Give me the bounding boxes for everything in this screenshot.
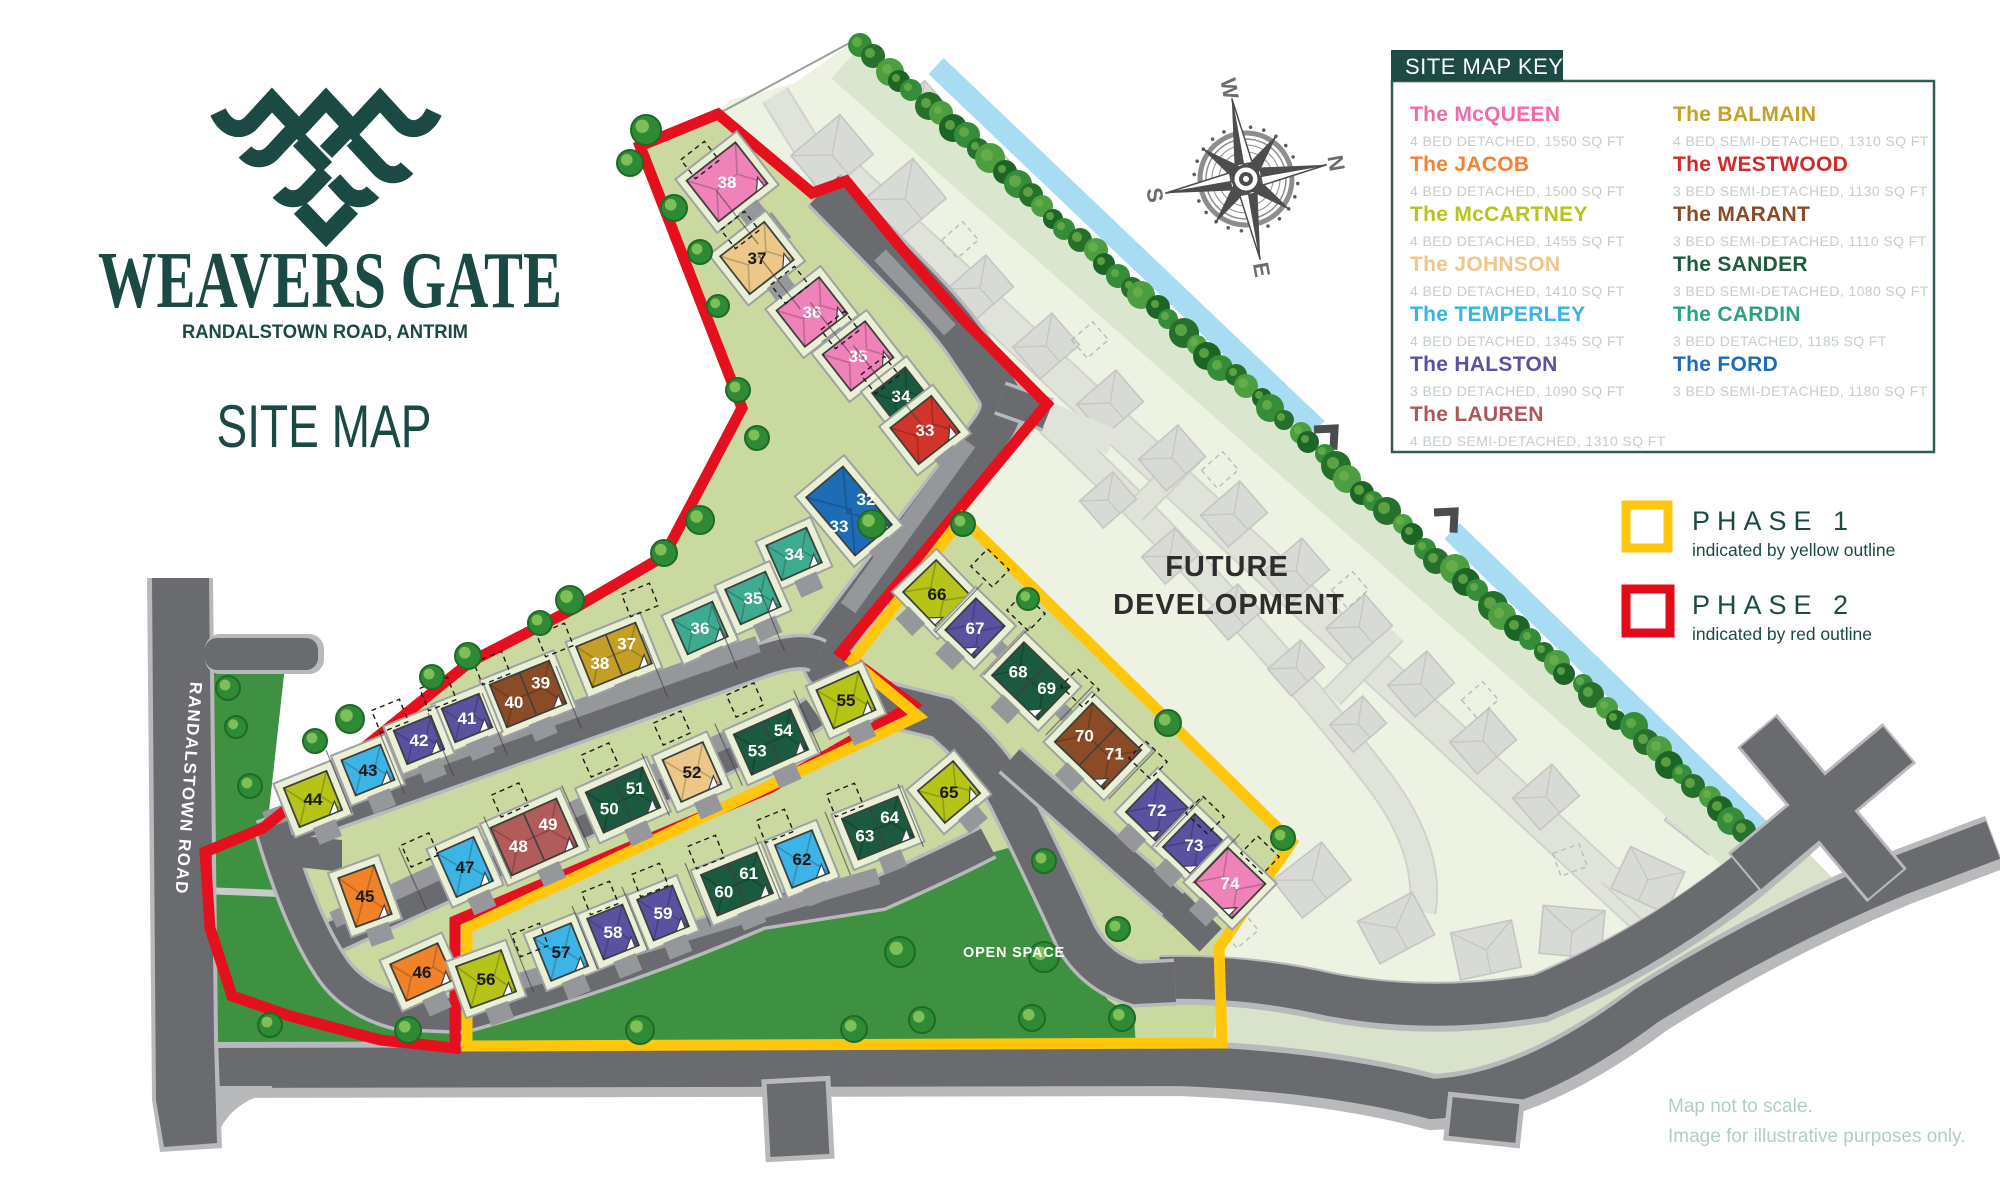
svg-text:The JACOB: The JACOB xyxy=(1410,153,1529,176)
svg-text:4 BED DETACHED, 1410 SQ FT: 4 BED DETACHED, 1410 SQ FT xyxy=(1410,283,1625,299)
svg-text:61: 61 xyxy=(739,864,758,883)
svg-text:62: 62 xyxy=(793,850,812,869)
svg-text:68: 68 xyxy=(1009,662,1028,681)
svg-text:46: 46 xyxy=(413,963,432,982)
svg-text:32: 32 xyxy=(857,490,876,509)
svg-text:SITE MAP: SITE MAP xyxy=(217,393,432,460)
svg-text:3 BED DETACHED, 1185 SQ FT: 3 BED DETACHED, 1185 SQ FT xyxy=(1673,333,1887,349)
svg-text:The BALMAIN: The BALMAIN xyxy=(1673,103,1816,126)
svg-text:3 BED SEMI-DETACHED, 1110 SQ F: 3 BED SEMI-DETACHED, 1110 SQ FT xyxy=(1673,233,1927,249)
svg-text:DEVELOPMENT: DEVELOPMENT xyxy=(1113,589,1345,621)
svg-text:53: 53 xyxy=(748,741,767,760)
svg-text:The McCARTNEY: The McCARTNEY xyxy=(1410,203,1588,226)
svg-text:3 BED SEMI-DETACHED, 1130 SQ F: 3 BED SEMI-DETACHED, 1130 SQ FT xyxy=(1673,183,1928,199)
svg-text:54: 54 xyxy=(774,721,793,740)
svg-text:34: 34 xyxy=(785,545,804,564)
svg-text:4 BED DETACHED, 1345 SQ FT: 4 BED DETACHED, 1345 SQ FT xyxy=(1410,333,1625,349)
svg-text:37: 37 xyxy=(617,634,636,653)
svg-text:41: 41 xyxy=(458,709,477,728)
svg-text:33: 33 xyxy=(830,517,849,536)
svg-text:38: 38 xyxy=(590,654,609,673)
svg-text:3 BED DETACHED, 1090 SQ FT: 3 BED DETACHED, 1090 SQ FT xyxy=(1410,383,1625,399)
svg-text:73: 73 xyxy=(1185,836,1204,855)
svg-text:63: 63 xyxy=(855,826,874,845)
svg-text:Image for illustrative purpose: Image for illustrative purposes only. xyxy=(1668,1126,1965,1147)
svg-text:The HALSTON: The HALSTON xyxy=(1410,353,1558,376)
svg-text:SITE MAP KEY: SITE MAP KEY xyxy=(1405,54,1563,79)
svg-text:57: 57 xyxy=(552,943,571,962)
svg-text:WEAVERS GATE: WEAVERS GATE xyxy=(98,237,562,325)
svg-text:60: 60 xyxy=(714,882,733,901)
svg-text:4 BED SEMI-DETACHED, 1310 SQ F: 4 BED SEMI-DETACHED, 1310 SQ FT xyxy=(1410,433,1666,449)
svg-text:51: 51 xyxy=(626,779,645,798)
svg-text:The TEMPERLEY: The TEMPERLEY xyxy=(1410,303,1585,326)
svg-text:69: 69 xyxy=(1037,679,1056,698)
svg-text:Map not to scale.: Map not to scale. xyxy=(1668,1096,1813,1117)
svg-text:33: 33 xyxy=(916,421,935,440)
svg-text:indicated by yellow outline: indicated by yellow outline xyxy=(1692,540,1895,560)
svg-text:PHASE 1: PHASE 1 xyxy=(1692,506,1855,536)
svg-text:67: 67 xyxy=(966,619,985,638)
svg-text:64: 64 xyxy=(880,808,899,827)
svg-text:4 BED DETACHED, 1550 SQ FT: 4 BED DETACHED, 1550 SQ FT xyxy=(1410,133,1625,149)
svg-text:35: 35 xyxy=(849,347,868,366)
svg-text:38: 38 xyxy=(718,173,737,192)
svg-text:The McQUEEN: The McQUEEN xyxy=(1410,103,1560,126)
svg-text:indicated by red outline: indicated by red outline xyxy=(1692,624,1872,644)
svg-text:50: 50 xyxy=(600,799,619,818)
svg-text:72: 72 xyxy=(1148,801,1167,820)
svg-text:36: 36 xyxy=(691,619,710,638)
svg-text:The SANDER: The SANDER xyxy=(1673,253,1808,276)
svg-text:42: 42 xyxy=(410,731,429,750)
svg-text:55: 55 xyxy=(837,691,856,710)
svg-text:PHASE 2: PHASE 2 xyxy=(1692,590,1855,620)
svg-text:66: 66 xyxy=(928,585,947,604)
svg-text:52: 52 xyxy=(683,763,702,782)
svg-text:44: 44 xyxy=(304,790,323,809)
svg-text:The CARDIN: The CARDIN xyxy=(1673,303,1801,326)
svg-text:3 BED SEMI-DETACHED, 1180 SQ F: 3 BED SEMI-DETACHED, 1180 SQ FT xyxy=(1673,383,1928,399)
svg-text:56: 56 xyxy=(477,970,496,989)
svg-text:70: 70 xyxy=(1075,727,1094,746)
svg-text:48: 48 xyxy=(509,837,528,856)
svg-text:The FORD: The FORD xyxy=(1673,353,1778,376)
svg-text:The JOHNSON: The JOHNSON xyxy=(1410,253,1560,276)
svg-text:FUTURE: FUTURE xyxy=(1165,551,1289,583)
svg-text:45: 45 xyxy=(356,887,375,906)
svg-text:43: 43 xyxy=(359,761,378,780)
svg-text:47: 47 xyxy=(456,858,475,877)
svg-text:58: 58 xyxy=(604,923,623,942)
svg-text:The MARANT: The MARANT xyxy=(1673,203,1810,226)
svg-text:59: 59 xyxy=(654,904,673,923)
svg-text:3 BED SEMI-DETACHED, 1080 SQ F: 3 BED SEMI-DETACHED, 1080 SQ FT xyxy=(1673,283,1929,299)
svg-text:The WESTWOOD: The WESTWOOD xyxy=(1673,153,1848,176)
svg-text:37: 37 xyxy=(748,249,767,268)
svg-text:RANDALSTOWN ROAD, ANTRIM: RANDALSTOWN ROAD, ANTRIM xyxy=(182,322,468,343)
svg-text:OPEN SPACE: OPEN SPACE xyxy=(963,945,1065,961)
svg-text:74: 74 xyxy=(1221,874,1240,893)
svg-text:49: 49 xyxy=(539,815,558,834)
svg-text:65: 65 xyxy=(940,783,959,802)
svg-text:40: 40 xyxy=(504,693,523,712)
svg-text:39: 39 xyxy=(531,673,550,692)
svg-text:4 BED DETACHED, 1455 SQ FT: 4 BED DETACHED, 1455 SQ FT xyxy=(1410,233,1625,249)
svg-text:4 BED DETACHED, 1500 SQ FT: 4 BED DETACHED, 1500 SQ FT xyxy=(1410,183,1625,199)
svg-text:The LAUREN: The LAUREN xyxy=(1410,403,1544,426)
svg-text:35: 35 xyxy=(744,589,763,608)
svg-text:4 BED SEMI-DETACHED, 1310 SQ F: 4 BED SEMI-DETACHED, 1310 SQ FT xyxy=(1673,133,1929,149)
svg-text:71: 71 xyxy=(1105,744,1124,763)
